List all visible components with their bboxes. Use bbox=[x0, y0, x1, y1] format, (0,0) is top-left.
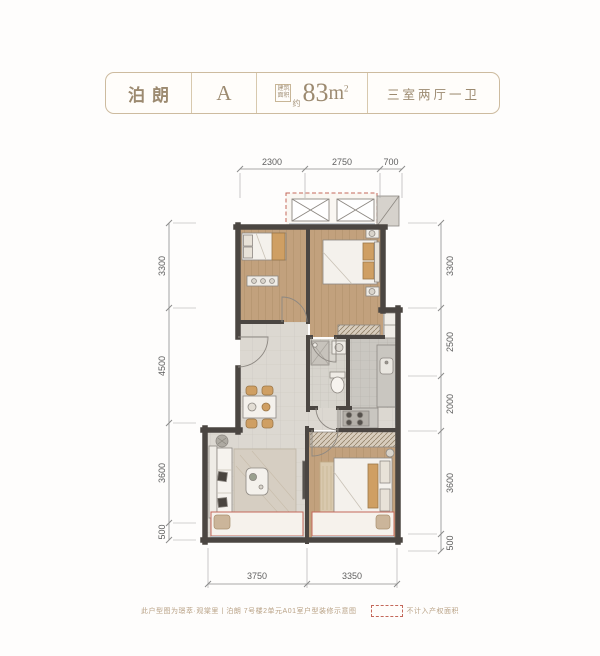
floorplan-drawing: 2300 2750 700 3300 4500 3600 500 3300 25… bbox=[0, 0, 600, 656]
master-lamp-top bbox=[386, 449, 394, 457]
dim-top-3: 700 bbox=[383, 157, 398, 167]
dim-right-1: 3300 bbox=[445, 256, 455, 276]
dim-right-2: 2500 bbox=[445, 332, 455, 352]
dining-chair bbox=[246, 386, 257, 395]
bedroom3-lamp-bottom bbox=[369, 289, 375, 295]
bathroom-shower bbox=[311, 341, 329, 365]
kitchen-stove bbox=[343, 411, 369, 426]
master-wardrobe bbox=[310, 432, 396, 447]
legend-label: 不计入产权面积 bbox=[407, 606, 460, 616]
dining-chair bbox=[262, 386, 273, 395]
corner-bay-window bbox=[377, 196, 399, 226]
kitchen-sink bbox=[380, 358, 393, 374]
dining-chair bbox=[262, 419, 273, 428]
dim-top-1: 2300 bbox=[262, 157, 282, 167]
dim-right-4: 3600 bbox=[445, 473, 455, 493]
dim-top-2: 2750 bbox=[332, 157, 352, 167]
dim-left-4: 500 bbox=[157, 524, 167, 539]
bedroom3-lamp-top bbox=[369, 231, 375, 237]
floorplan-page: 泊朗 A 建筑 面积 约 83 m2 三室两厅一卫 bbox=[0, 0, 600, 656]
dim-right-5: 500 bbox=[445, 535, 455, 550]
living-coffee-table bbox=[246, 468, 268, 495]
bathroom-toilet bbox=[330, 372, 345, 393]
balcony-plant-left bbox=[214, 515, 230, 529]
bedroom3-bed bbox=[323, 240, 380, 284]
dashed-red-box-icon bbox=[371, 605, 403, 617]
area-legend: 不计入产权面积 bbox=[371, 605, 460, 617]
dim-right-3: 2000 bbox=[445, 394, 455, 414]
dim-bottom-1: 3750 bbox=[247, 571, 267, 581]
bedroom2-bed bbox=[242, 233, 286, 260]
dining-chair bbox=[246, 419, 257, 428]
dim-left-3: 3600 bbox=[157, 463, 167, 483]
bedroom3-dresser bbox=[338, 325, 380, 335]
bathroom-sink bbox=[332, 341, 346, 354]
dim-bottom-2: 3350 bbox=[342, 571, 362, 581]
footer: 此户型图为璟萃·观棠里丨泊朗 7号楼2单元A01室户型装修示意图 不计入产权面积 bbox=[0, 601, 600, 621]
bedroom2-desk bbox=[247, 276, 278, 286]
dim-left-1: 3300 bbox=[157, 256, 167, 276]
dim-left-2: 4500 bbox=[157, 356, 167, 376]
disclaimer-text: 此户型图为璟萃·观棠里丨泊朗 7号楼2单元A01室户型装修示意图 bbox=[141, 606, 357, 616]
living-sofa bbox=[209, 446, 232, 518]
kitchen-fridge bbox=[384, 313, 396, 338]
balcony-plant-right bbox=[376, 515, 390, 529]
master-bed bbox=[334, 458, 392, 514]
